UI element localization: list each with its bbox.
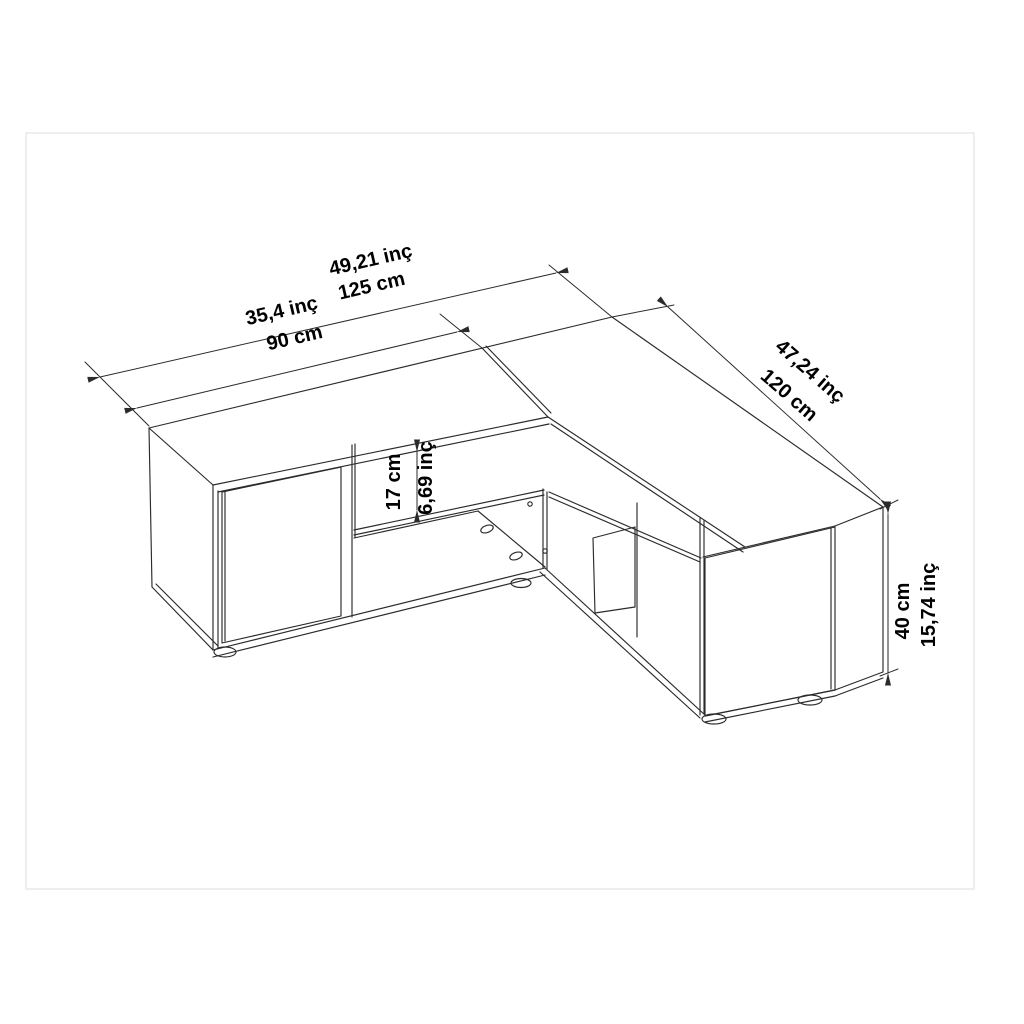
- cable-hole: [509, 550, 524, 561]
- label-height-cm: 40 cm: [892, 583, 914, 640]
- cam-fitting: [528, 502, 532, 506]
- label-shelf-height-cm: 17 cm: [383, 454, 405, 511]
- dim-line-120cm: [668, 307, 880, 499]
- right-door-section: [700, 507, 883, 722]
- extension-lines: [85, 265, 898, 676]
- foot: [798, 695, 822, 705]
- cable-hole: [480, 523, 495, 534]
- label-shelf-height-inch: 6,69 inç: [415, 441, 437, 514]
- right-wing-niche: [540, 492, 705, 718]
- feet: [214, 579, 822, 725]
- left-door: [222, 467, 341, 643]
- image-frame: [26, 133, 974, 889]
- left-end-panel: [149, 428, 218, 650]
- dim-line-125cm: [100, 273, 556, 377]
- left-wing-base: [213, 568, 545, 657]
- label-left-section-cm: 90 cm: [265, 321, 325, 355]
- product-dimension-image: 49,21 inç 125 cm 35,4 inç 90 cm 47,24 in…: [0, 0, 1024, 1024]
- dimension-drawing-svg: 49,21 inç 125 cm 35,4 inç 90 cm 47,24 in…: [0, 0, 1024, 1024]
- label-height-inch: 15,74 inç: [918, 563, 940, 648]
- dimension-lines: [85, 265, 898, 676]
